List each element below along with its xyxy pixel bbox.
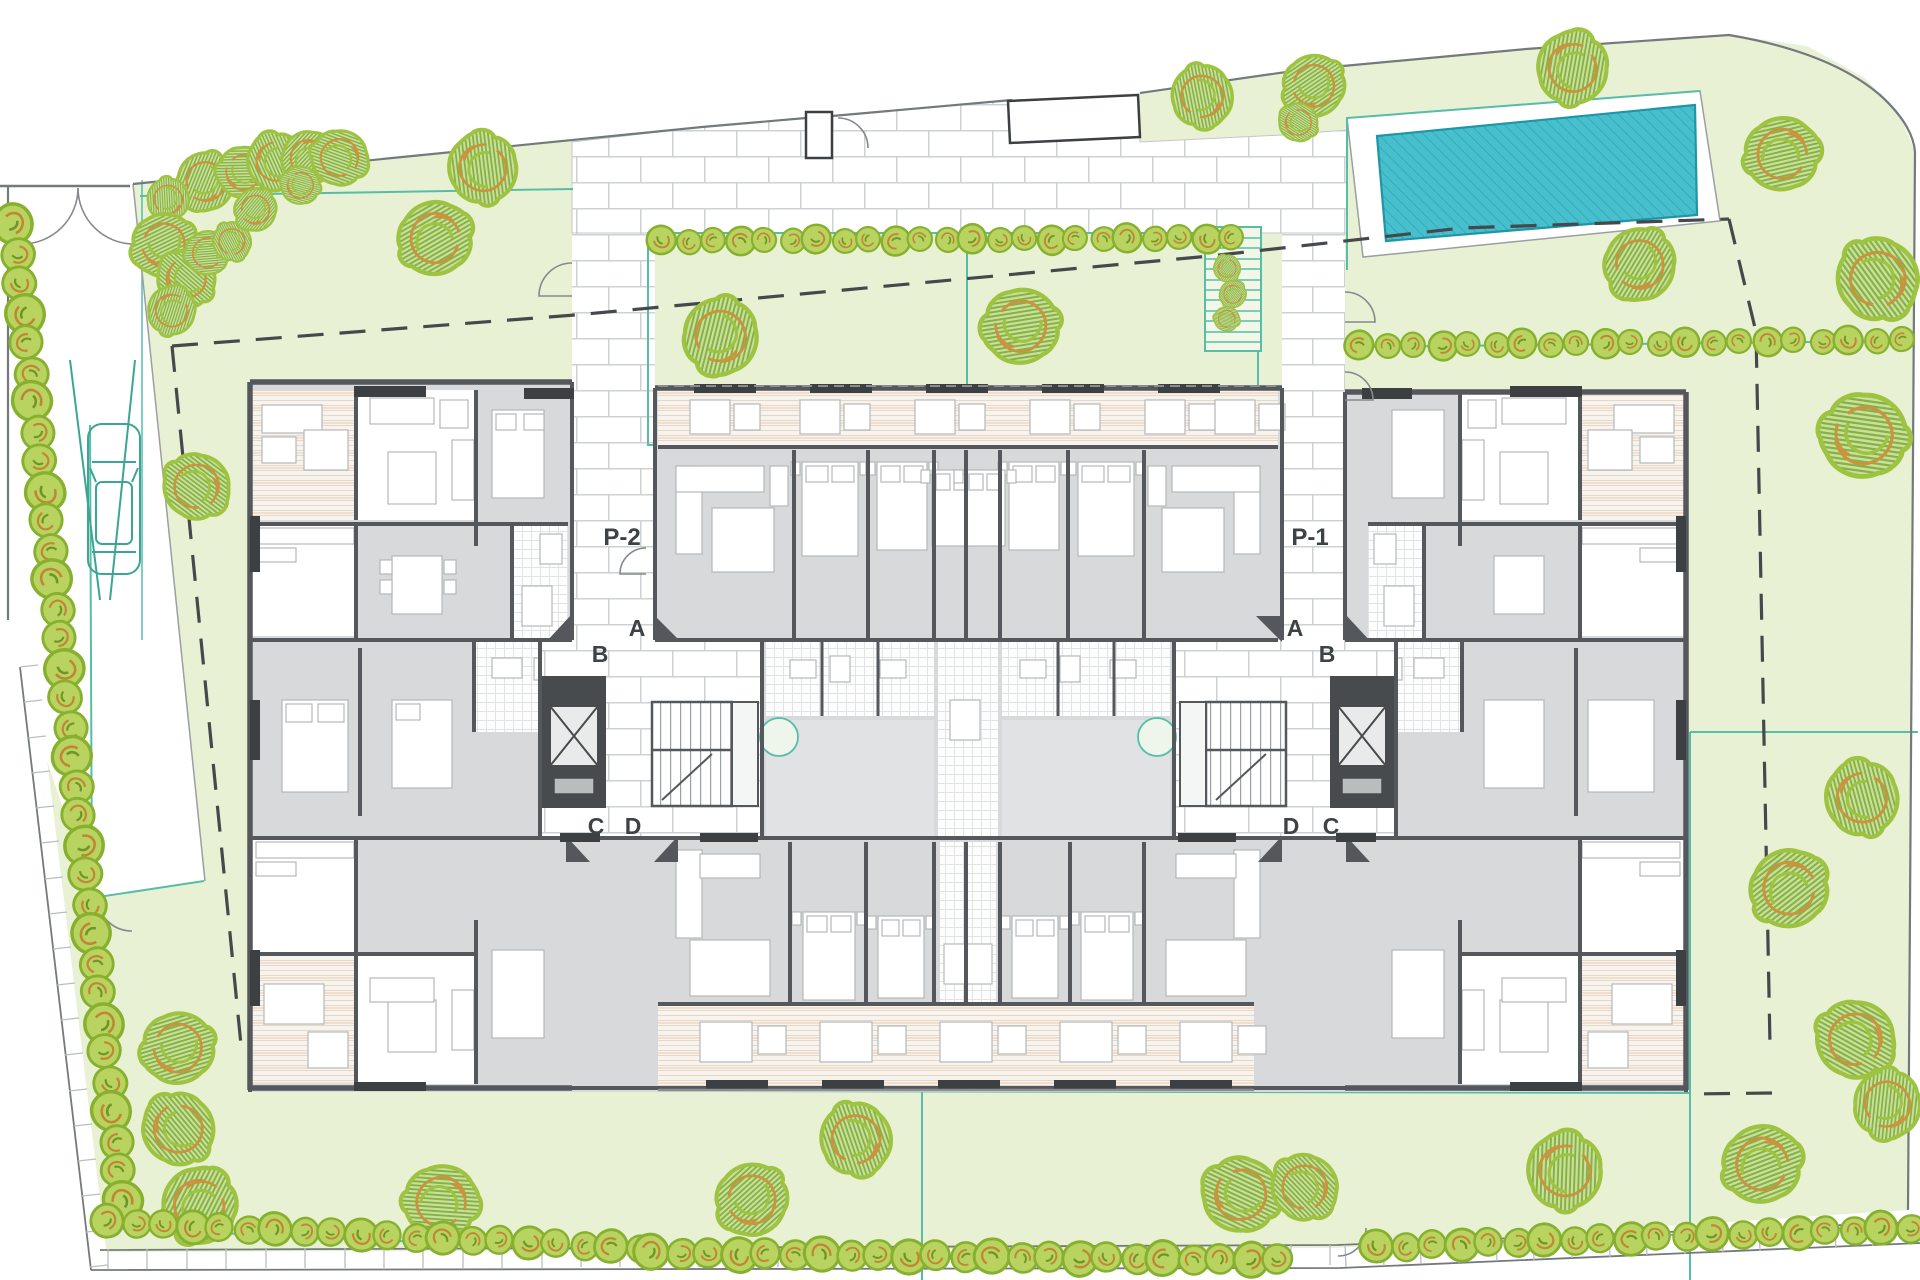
svg-text:C: C xyxy=(1323,813,1340,839)
svg-text:C: C xyxy=(588,813,605,839)
svg-text:P-1: P-1 xyxy=(1291,524,1328,551)
svg-text:P-2: P-2 xyxy=(603,524,640,551)
svg-text:A: A xyxy=(1287,615,1304,641)
svg-text:A: A xyxy=(629,615,646,641)
svg-text:B: B xyxy=(1319,641,1336,667)
svg-text:D: D xyxy=(1283,813,1300,839)
svg-text:D: D xyxy=(625,813,642,839)
svg-text:B: B xyxy=(592,641,609,667)
